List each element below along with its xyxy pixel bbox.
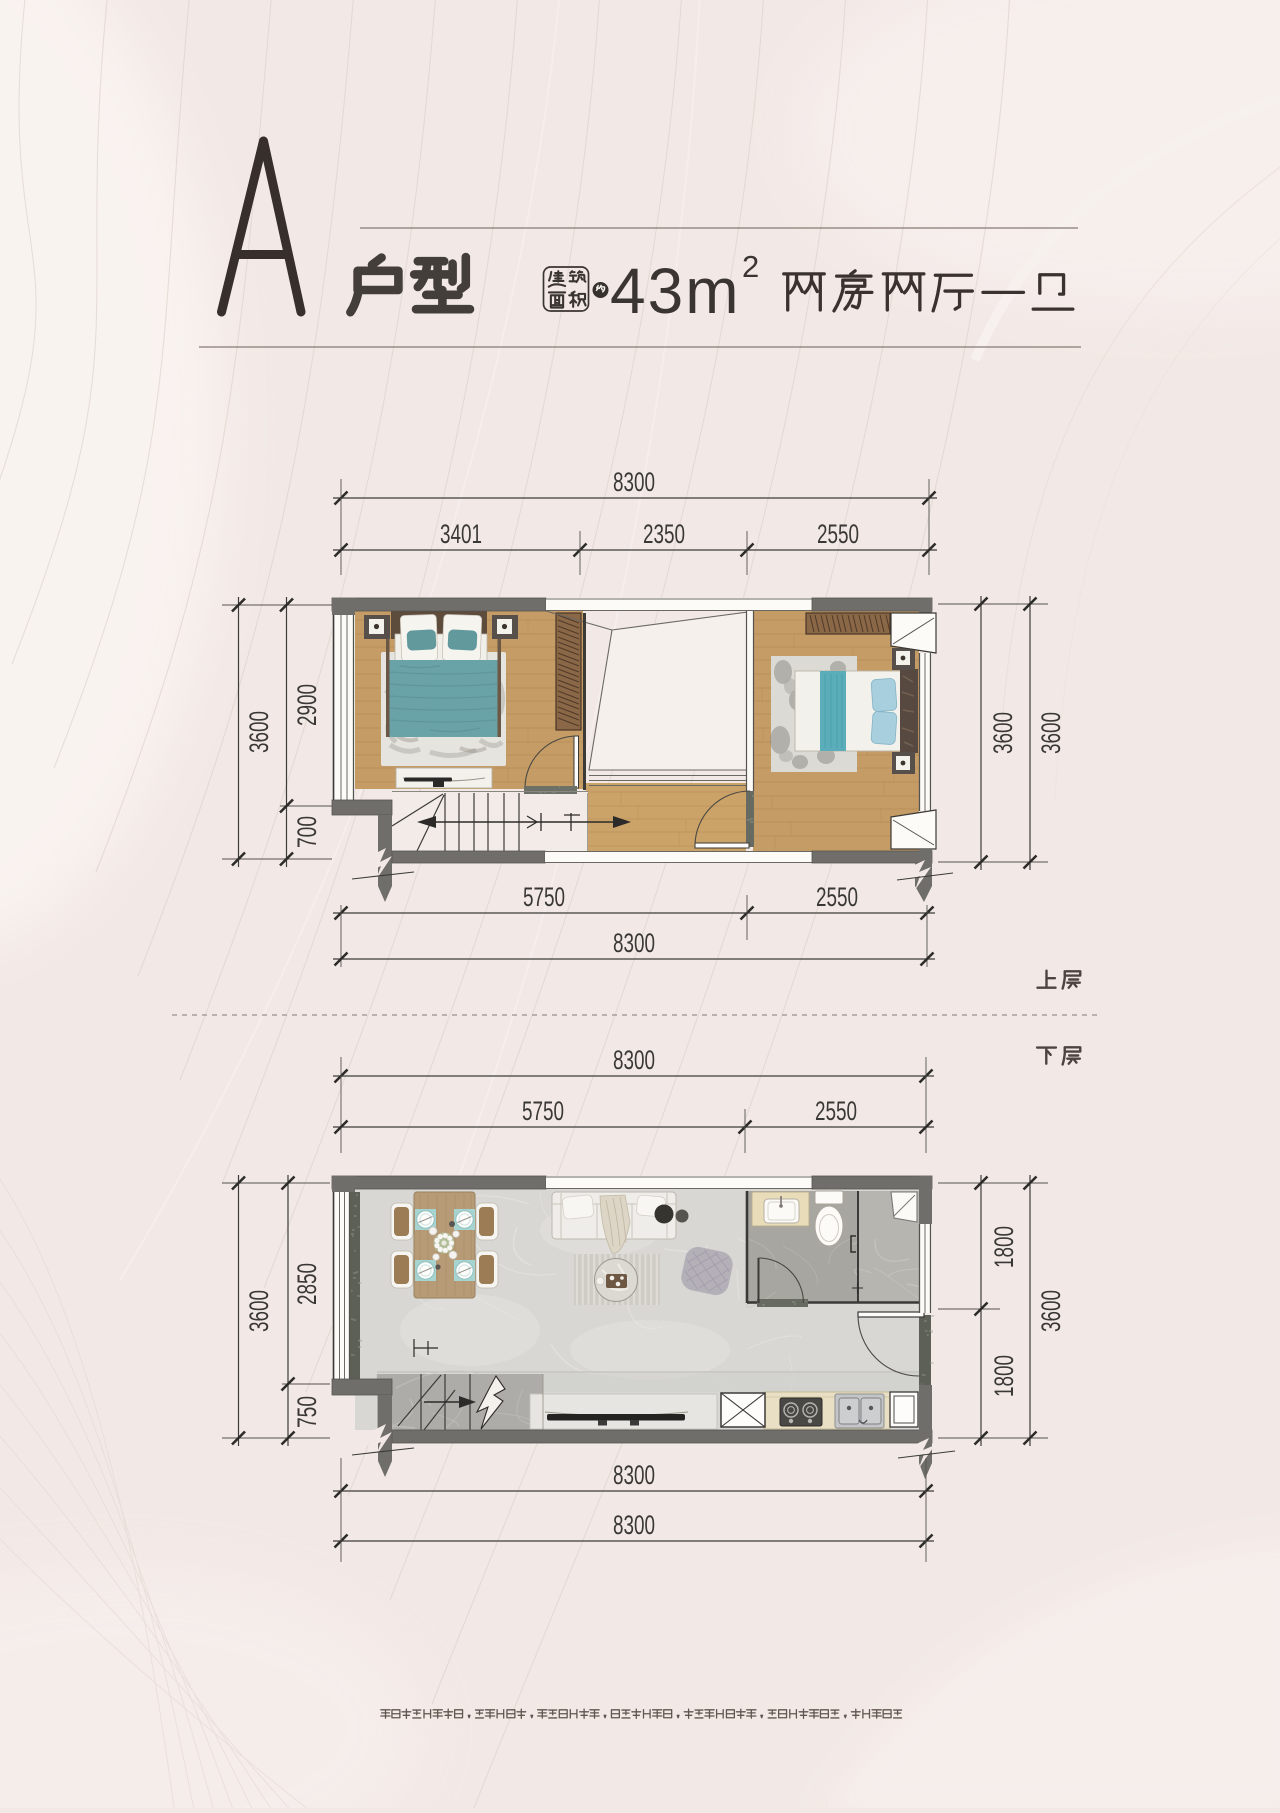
- svg-text:3600: 3600: [1036, 712, 1066, 754]
- svg-text:2350: 2350: [643, 519, 685, 549]
- svg-text:1800: 1800: [989, 1355, 1019, 1397]
- svg-text:5750: 5750: [522, 1096, 564, 1126]
- svg-text:3401: 3401: [440, 519, 482, 549]
- svg-text:2900: 2900: [292, 684, 322, 726]
- svg-text:8300: 8300: [613, 1510, 655, 1540]
- svg-text:3600: 3600: [988, 712, 1018, 754]
- svg-text:8300: 8300: [613, 1045, 655, 1075]
- svg-text:750: 750: [292, 1396, 322, 1428]
- svg-text:8300: 8300: [613, 467, 655, 497]
- svg-text:2: 2: [742, 249, 759, 284]
- svg-text:3600: 3600: [244, 711, 274, 753]
- svg-text:2550: 2550: [817, 519, 859, 549]
- svg-text:8300: 8300: [613, 928, 655, 958]
- svg-text:3600: 3600: [1036, 1290, 1066, 1332]
- svg-text:1800: 1800: [989, 1226, 1019, 1268]
- svg-text:700: 700: [292, 816, 322, 848]
- svg-text:8300: 8300: [613, 1460, 655, 1490]
- svg-text:3600: 3600: [244, 1290, 274, 1332]
- svg-text:2850: 2850: [292, 1263, 322, 1305]
- svg-text:2550: 2550: [816, 882, 858, 912]
- svg-text:2550: 2550: [815, 1096, 857, 1126]
- svg-text:5750: 5750: [523, 882, 565, 912]
- svg-text:43m: 43m: [610, 255, 741, 327]
